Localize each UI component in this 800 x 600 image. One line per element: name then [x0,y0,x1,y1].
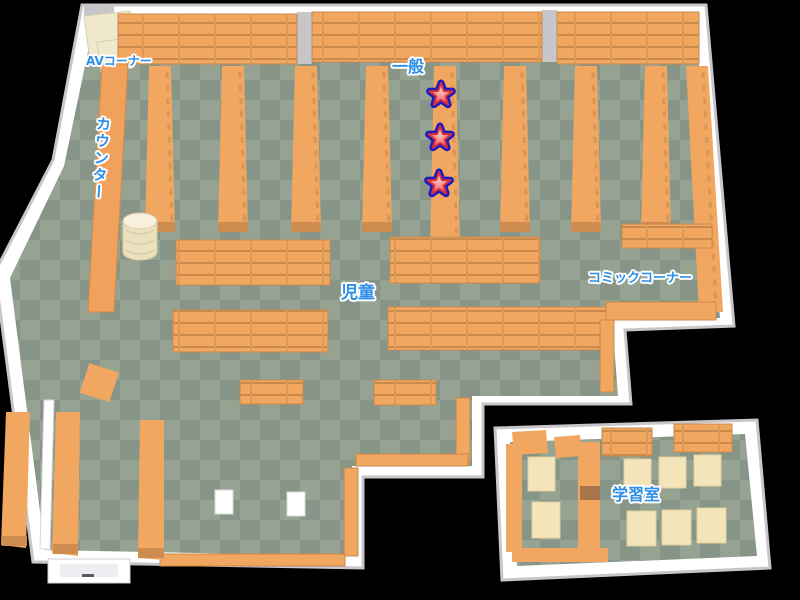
label-comic-corner: コミックコーナー [588,272,692,286]
library-floor-map: AVコーナー カウンター 一般 児童 コミックコーナー 学習室 [0,0,800,600]
display-cylinder [123,213,157,260]
label-av-corner: AVコーナー [86,55,152,68]
label-children-area: 児童 [341,285,375,303]
label-study-room: 学習室 [612,487,660,504]
door-handle-icon [82,574,94,577]
label-general-area: 一般 [392,59,424,76]
entrance-door [48,559,130,583]
floor-plan-canvas [0,0,800,600]
